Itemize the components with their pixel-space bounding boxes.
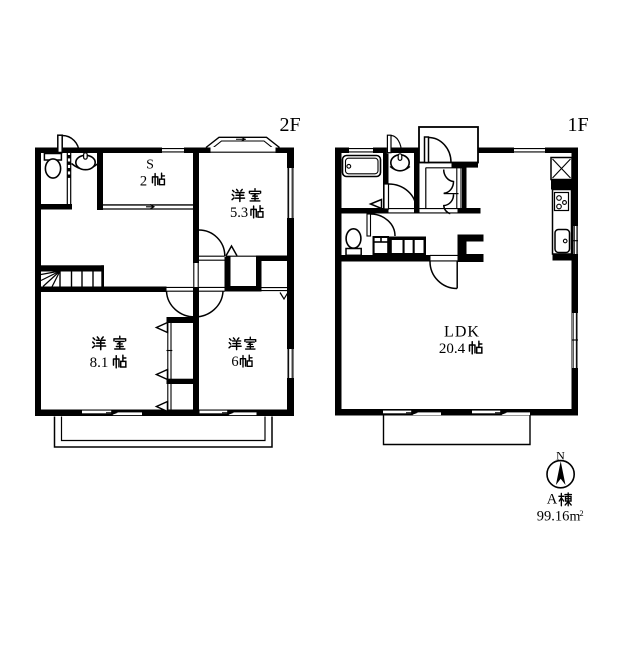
svg-text:2F: 2F	[279, 114, 300, 136]
svg-text:6: 6	[231, 354, 238, 370]
svg-text:99.16: 99.16	[537, 509, 570, 525]
svg-text:2: 2	[579, 508, 583, 518]
svg-text:2: 2	[140, 174, 147, 190]
svg-text:A: A	[547, 492, 558, 508]
svg-text:20.4: 20.4	[439, 341, 466, 357]
svg-text:5.3: 5.3	[230, 205, 248, 221]
svg-text:S: S	[146, 158, 154, 173]
svg-text:LDK: LDK	[444, 324, 480, 341]
svg-text:1F: 1F	[567, 114, 588, 136]
svg-text:8.1: 8.1	[90, 355, 109, 371]
